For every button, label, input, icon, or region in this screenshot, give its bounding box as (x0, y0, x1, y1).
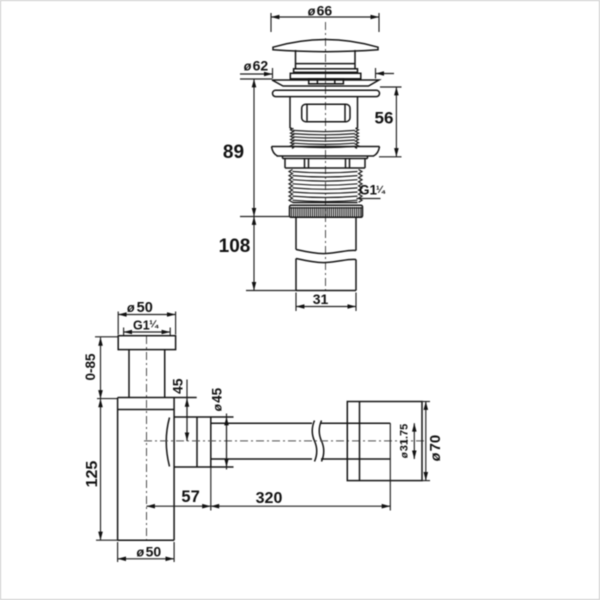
svg-text:ø50: ø50 (127, 300, 153, 316)
svg-text:G1¼: G1¼ (133, 319, 159, 333)
svg-text:89: 89 (223, 142, 244, 163)
svg-text:G1¼: G1¼ (359, 183, 386, 198)
svg-text:56: 56 (375, 109, 394, 128)
svg-text:ø 45: ø 45 (210, 387, 225, 411)
svg-text:57: 57 (181, 488, 199, 506)
svg-text:ø 66: ø 66 (308, 3, 333, 19)
svg-text:0-85: 0-85 (83, 353, 98, 381)
svg-text:108: 108 (219, 236, 251, 257)
svg-text:ø50: ø50 (136, 544, 161, 560)
svg-text:45: 45 (170, 378, 186, 394)
svg-text:ø 31.75: ø 31.75 (399, 424, 411, 459)
svg-text:31: 31 (313, 291, 329, 307)
svg-text:320: 320 (256, 490, 283, 507)
svg-text:125: 125 (84, 461, 101, 488)
svg-text:ø 62: ø 62 (244, 58, 269, 74)
svg-text:ø 70: ø 70 (427, 435, 444, 462)
